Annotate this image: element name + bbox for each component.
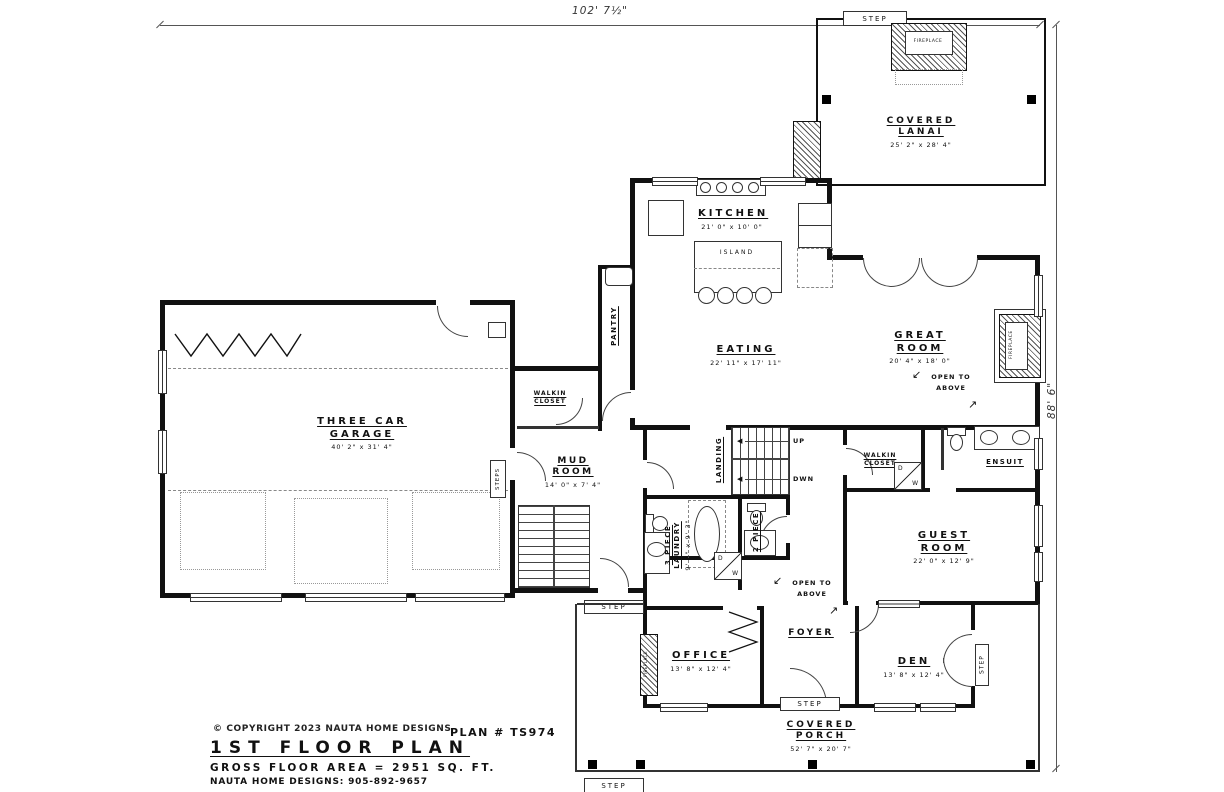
room-name: KITCHEN [698,208,766,221]
gross-area: GROSS FLOOR AREA = 2951 SQ. FT. [210,762,496,774]
lanai-post [822,95,831,104]
garage-entry-door-arc [437,306,468,337]
dryer-letter: D [718,555,723,562]
garage-bay-outline [294,498,388,584]
garage-bay-outline [180,492,266,570]
office-label: OFFICE 13' 8" x 12' 4" [668,650,734,673]
pantry-left-wall [598,265,602,431]
greatroom-patio-door-arc [949,258,978,287]
lanai-hearth [895,69,963,85]
down-arrow-icon: ◀ [737,475,742,483]
window [1034,438,1043,470]
room-name: COVERED PORCH [776,720,866,743]
open-to-above-note: OPEN TO ABOVE [925,372,977,394]
walkin-partition [517,426,599,429]
ensuite-toilet-bowl [950,434,963,451]
sheet-title: 1ST FLOOR PLAN [210,738,470,758]
washer-letter: W [912,480,918,487]
landing-label: LANDING [715,434,725,486]
step-label: STEP [862,15,887,23]
down-label: DWN [793,475,814,483]
stool-icon [698,287,715,304]
porch-post [636,760,645,769]
open-to-above-arrow-icon: ↙ [773,574,782,587]
room-name: WALKIN CLOSET [526,390,574,405]
lanai-wall-hatch [793,121,821,183]
kitchen-left-wall [630,178,635,425]
room-name: PANTRY [610,300,619,352]
covered-lanai-label: COVERED LANAI 25' 2" x 28' 4" [876,116,966,149]
room-name: DEN [882,656,946,669]
dryer-letter: D [898,465,903,472]
office-french-door-icon [727,612,763,654]
burner-icon [700,182,711,193]
room-name: OFFICE [668,650,734,663]
up-label: UP [793,437,805,445]
window [1034,552,1043,582]
stool-icon [755,287,772,304]
wall-oven [798,203,832,226]
burner-icon [732,182,743,193]
copyright-line: © COPYRIGHT 2023 NAUTA HOME DESIGNS [213,724,452,734]
basement-step-gap [598,586,628,594]
room-name: ENSUIT [976,458,1034,467]
room-dims: 22' 0" x 12' 9" [908,557,980,565]
room-name: 3 PIECE LAUNDRY [664,509,682,581]
garage-ceiling-line [168,490,508,491]
overall-width-dimension: 102' 7½" [548,5,652,17]
fridge-outline [797,248,833,288]
lanai-fireplace-label: FIREPLACE [906,39,950,44]
room-name: GUEST ROOM [908,530,980,555]
ensuite-entry-gap [930,487,956,493]
office-door-gap [723,606,757,610]
great-fireplace-label: FIREPLACE [1009,324,1022,366]
ensuite-label: ENSUIT [976,458,1034,467]
room-dims: 40' 2" x 31' 4" [300,443,424,451]
room-dims: 52' 7" x 20' 7" [776,745,866,753]
garage-steps-box: STEPS [490,460,506,498]
pantry-door-arc [602,392,631,421]
porch-right-wall [1038,604,1040,772]
garage-door [415,593,505,602]
garage-door [190,593,282,602]
step-label: STEP [601,782,626,790]
porch-post [588,760,597,769]
basement-exit-door-arc [600,558,629,587]
mud-door-arc [517,452,546,481]
copyright-icon: © [213,724,223,734]
garage-entry-gap [436,299,470,306]
island-label: ISLAND [707,249,767,256]
room-name: 2 PIECE [752,511,761,553]
mud-door-gap [509,448,516,480]
pantry-sink [605,267,633,286]
stool-icon [736,287,753,304]
mud-core-door-arc [647,462,674,489]
window [874,703,916,712]
ensuite-partition [941,428,944,470]
main-stairs-rail [731,458,788,460]
porch-post [808,760,817,769]
den-door-arc [943,658,972,687]
walkin-closet-mud-label: WALKIN CLOSET [526,390,574,405]
room-name: EATING [710,344,782,357]
wall-oven [798,225,832,248]
garage-closet-zigzag-icon [175,332,305,358]
open-to-above-arrow-icon: ↗ [968,398,977,411]
window [1034,505,1043,547]
window [760,177,806,186]
window [920,703,956,712]
garage-bay-outline [412,492,500,570]
room-dims: 25' 2" x 28' 4" [876,141,966,149]
office-fireplace-label: FIREPLACE [643,640,653,688]
window [652,177,698,186]
up-arrow-icon: ◀ [737,437,742,445]
guest-room-label: GUEST ROOM 22' 0" x 12' 9" [908,530,980,565]
mud-top-wall [510,366,602,371]
washer-letter: W [732,570,738,577]
porch-bottom-wall [575,770,1040,772]
room-dims: 13' 8" x 12' 4" [668,665,734,673]
ensuite-sink [980,430,998,445]
floor-plan-canvas: 102' 7½" 88' 6" STEP FIREPLACE COVERED L… [0,0,1224,792]
down-arrow-line [745,479,789,480]
open-to-above-arrow-icon: ↙ [912,368,921,381]
den-label: DEN 13' 8" x 12' 4" [882,656,946,679]
designer-contact: NAUTA HOME DESIGNS: 905-892-9657 [210,777,428,787]
burner-icon [748,182,759,193]
washer-dryer-box: D W [714,552,742,580]
room-dims: 21' 0" x 10' 0" [698,223,766,231]
covered-porch-label: COVERED PORCH 52' 7" x 20' 7" [776,720,866,753]
garage-ceiling-line [168,368,508,369]
room-name: THREE CAR GARAGE [300,416,424,441]
copyright-text: COPYRIGHT 2023 NAUTA HOME DESIGNS [226,724,451,734]
room-name: MUD ROOM [544,456,602,479]
landing-opening-gap [690,425,726,430]
overall-height-dimension: 88' 6" [1046,372,1059,428]
island-counter-line [694,268,780,269]
room-dims: 14' 0" x 7' 4" [544,481,602,489]
eating-label: EATING 22' 11" x 17' 11" [710,344,782,367]
greatroom-patio-door-arc [891,258,920,287]
guest-door-arc [850,604,879,633]
burner-icon [716,182,727,193]
room-name: LANDING [715,434,724,486]
room-name: FOYER [782,628,840,639]
kitchen-corner-cabinet [648,200,684,236]
window [158,430,167,474]
foyer-label: FOYER [782,628,840,639]
great-room-label: GREAT ROOM 20' 4" x 18' 0" [884,330,956,365]
ensuite-sink [1012,430,1030,445]
basement-stairs-rail [553,505,555,586]
room-name: COVERED LANAI [876,116,966,139]
guest-washer-dryer-box: D W [894,462,922,490]
kitchen-label: KITCHEN 21' 0" x 10' 0" [698,208,766,231]
garage-utility-box [488,322,506,338]
open-to-above-arrow-icon: ↗ [829,604,838,617]
porch-top-wall [577,603,643,605]
open-to-above-note: OPEN TO ABOVE [786,578,838,600]
pantry-label: PANTRY [610,300,622,352]
porch-step-box: STEP [584,778,644,792]
garage-label: THREE CAR GARAGE 40' 2" x 31' 4" [300,416,424,451]
mud-room-label: MUD ROOM 14' 0" x 7' 4" [544,456,602,489]
window [878,600,920,608]
garage-door [305,593,407,602]
window [1034,275,1043,317]
core-mid-wall [643,495,790,499]
stool-icon [717,287,734,304]
porch-left-wall [575,604,577,772]
room-name: GREAT ROOM [884,330,956,355]
foyer-step-box: STEP [780,697,840,711]
up-arrow-line [745,441,789,442]
room-dims: 13' 8" x 12' 4" [882,671,946,679]
den-step-box: STEP [975,644,989,686]
laundry-label: 3 PIECE LAUNDRY 9' 4" x 9' 3" [664,509,698,581]
step-label: STEP [979,656,986,675]
room-dims: 22' 11" x 17' 11" [710,359,782,367]
room-dims: 9' 4" x 9' 3" [684,509,692,581]
step-label: STEP [797,700,822,708]
porch-post [1026,760,1035,769]
greatroom-patio-door-arc [863,258,892,287]
room-dims: 20' 4" x 18' 0" [884,357,956,365]
steps-label: STEPS [495,468,501,490]
two-piece-label: 2 PIECE [752,511,762,553]
window [660,703,708,712]
greatroom-patio-door-arc [921,258,950,287]
lanai-post [1027,95,1036,104]
window [158,350,167,394]
